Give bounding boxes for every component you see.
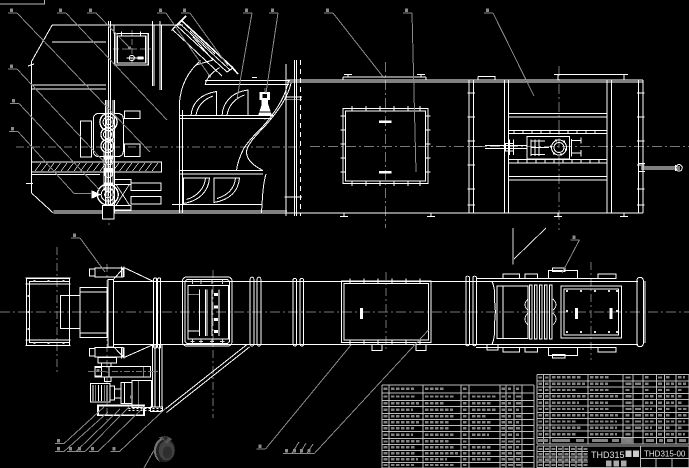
svg-text:THD315-00: THD315-00 — [644, 450, 686, 459]
svg-text:THD315: THD315 — [591, 450, 625, 460]
